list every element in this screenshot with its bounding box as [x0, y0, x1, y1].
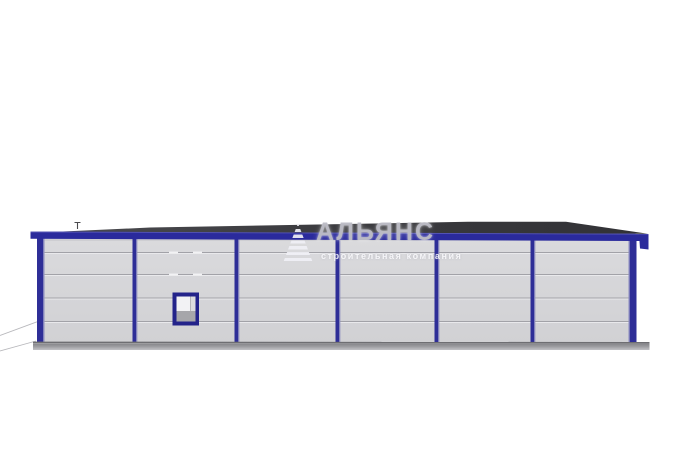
- roof-vent-icon: [75, 222, 81, 229]
- ground-line: [0, 341, 36, 351]
- ground-line: [0, 322, 37, 336]
- building-elevation-render: [0, 0, 700, 474]
- foundation-base: [33, 343, 650, 350]
- render-canvas: АЛЬЯНС строительная компания: [0, 0, 700, 474]
- fascia-corner-return: [639, 235, 649, 250]
- window: [173, 293, 200, 326]
- window-sill: [177, 311, 196, 322]
